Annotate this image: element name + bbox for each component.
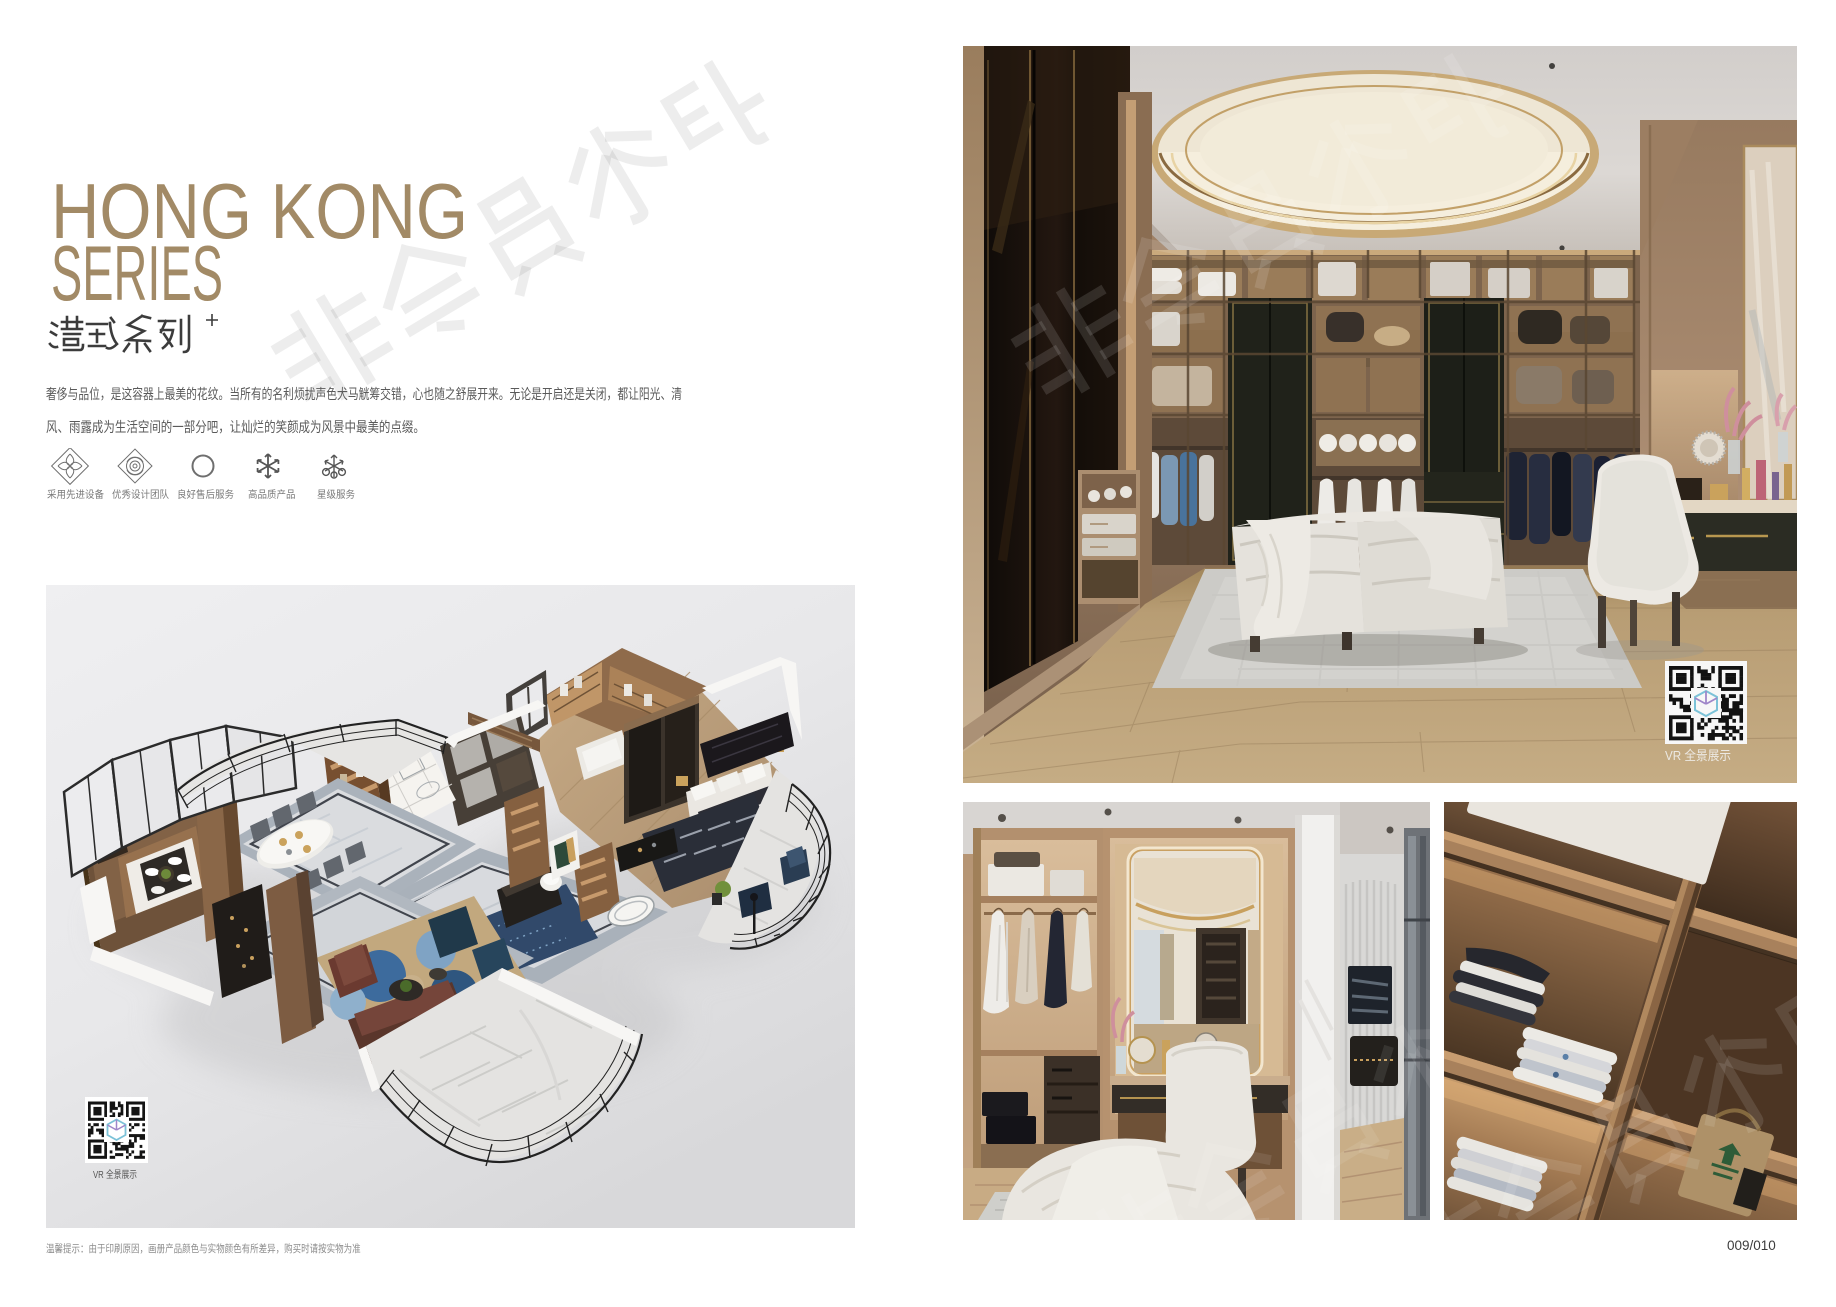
svg-text:VR 全景展示: VR 全景展示 [93,1168,137,1181]
svg-text:SERIES: SERIES [51,229,223,317]
svg-text:VR 全景展示: VR 全景展示 [1665,748,1731,763]
